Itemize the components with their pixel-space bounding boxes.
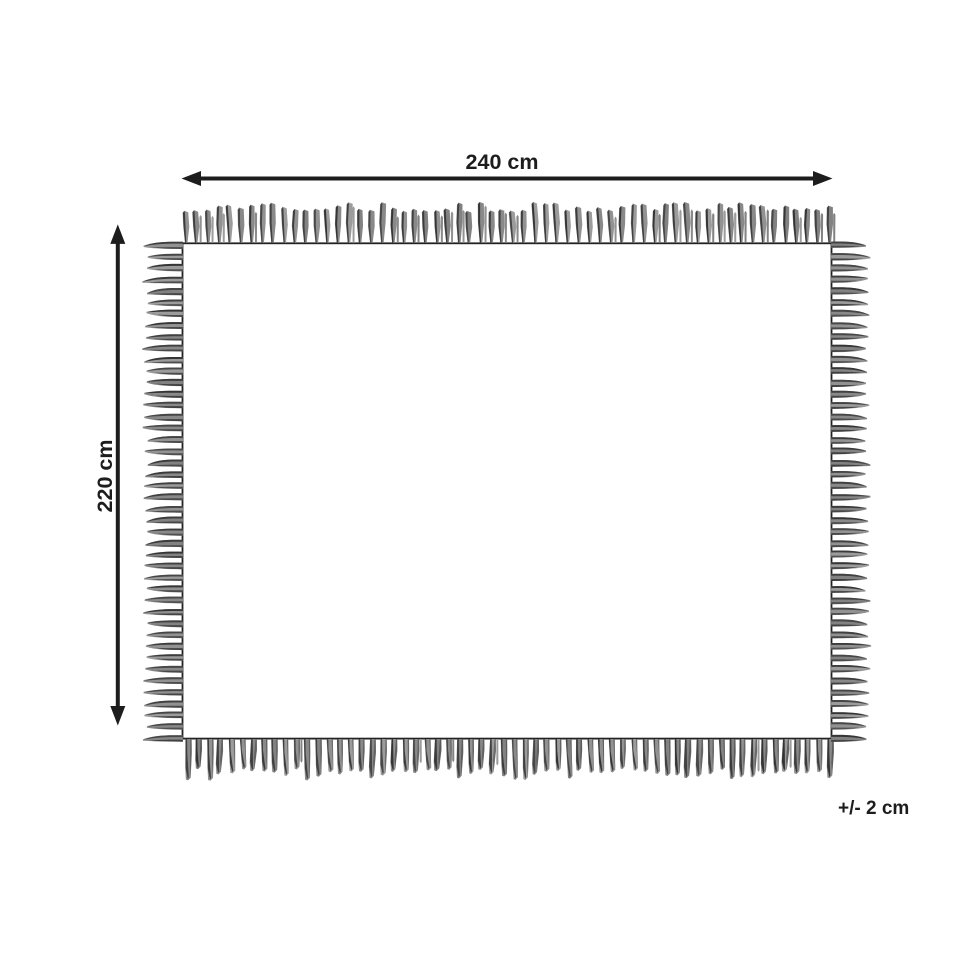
svg-text:240 cm: 240 cm <box>466 150 539 174</box>
svg-text:+/- 2 cm: +/- 2 cm <box>838 798 909 819</box>
svg-text:220 cm: 220 cm <box>93 440 117 513</box>
